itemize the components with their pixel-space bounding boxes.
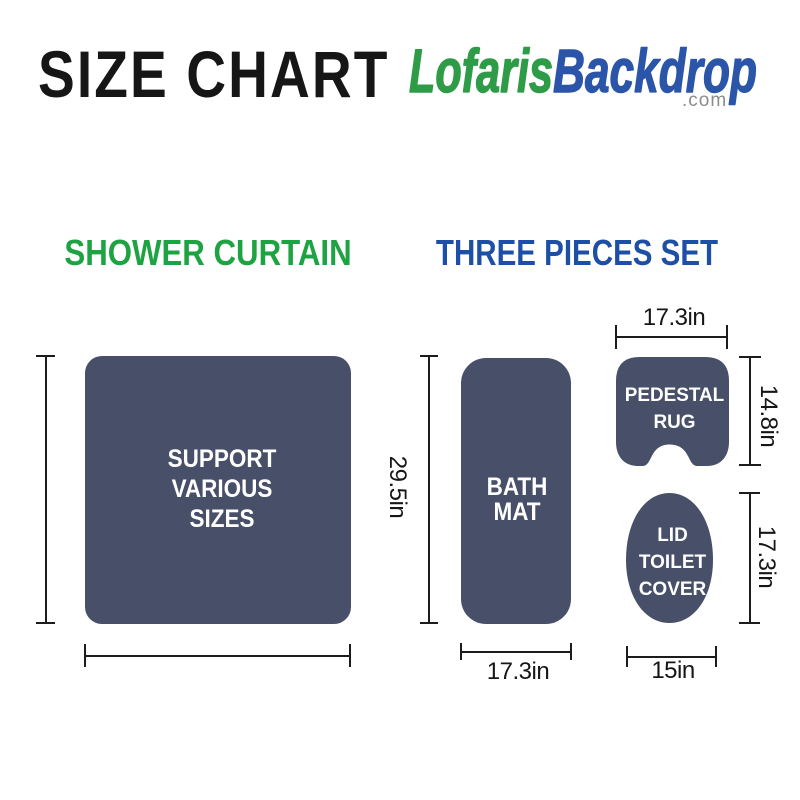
svg-text:Lofaris: Lofaris [409,37,553,105]
